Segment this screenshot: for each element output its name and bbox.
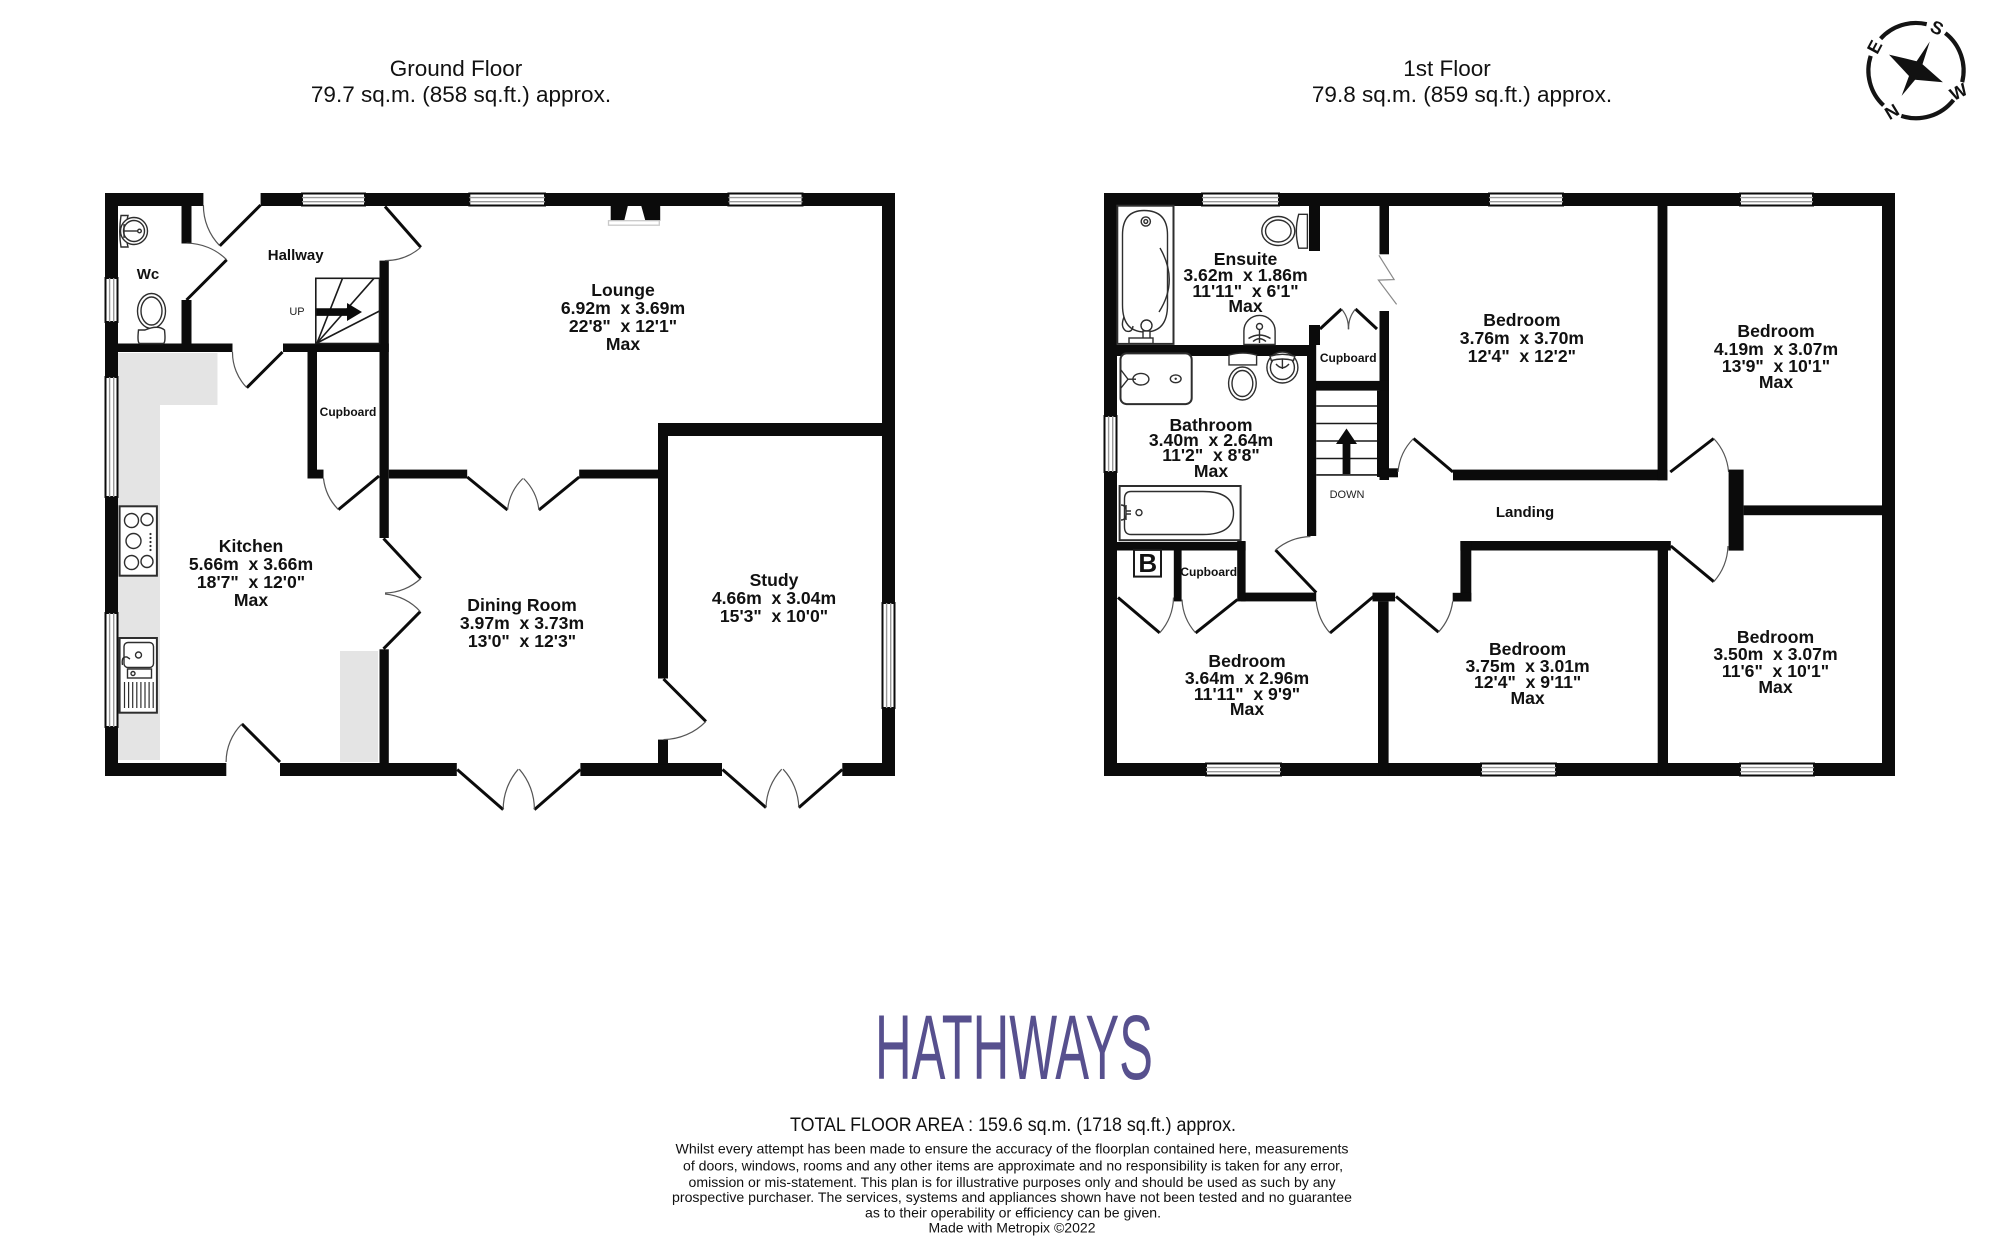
svg-text:prospective purchaser. The ser: prospective purchaser. The services, sys… [672,1189,1352,1205]
svg-text:79.7 sq.m. (858 sq.ft.) approx: 79.7 sq.m. (858 sq.ft.) approx. [311,82,611,107]
svg-text:Max: Max [1759,372,1793,392]
svg-text:omission or mis-statement. Thi: omission or mis-statement. This plan is … [689,1174,1336,1190]
svg-text:Bedroom: Bedroom [1737,321,1814,341]
svg-text:3.76m x 3.70m: 3.76m x 3.70m [1460,328,1584,348]
svg-text:18'7" x 12'0": 18'7" x 12'0" [197,572,305,592]
svg-text:Cupboard: Cupboard [1180,565,1237,579]
svg-text:79.8 sq.m. (859 sq.ft.) approx: 79.8 sq.m. (859 sq.ft.) approx. [1312,82,1612,107]
svg-text:TOTAL FLOOR AREA : 159.6 sq.m.: TOTAL FLOOR AREA : 159.6 sq.m. (1718 sq.… [790,1114,1236,1136]
svg-text:HATHWAYS: HATHWAYS [875,997,1153,1099]
svg-text:5.66m x 3.66m: 5.66m x 3.66m [189,554,313,574]
svg-text:3.97m x 3.73m: 3.97m x 3.73m [460,613,584,633]
svg-text:B: B [1138,548,1157,578]
svg-text:22'8" x 12'1": 22'8" x 12'1" [569,316,677,336]
svg-text:6.92m x 3.69m: 6.92m x 3.69m [561,298,685,318]
svg-text:Ground Floor: Ground Floor [390,56,523,81]
svg-text:Max: Max [606,334,640,354]
svg-text:UP: UP [289,306,304,318]
svg-text:13'0" x 12'3": 13'0" x 12'3" [468,631,576,651]
svg-text:Dining Room: Dining Room [467,595,576,615]
svg-text:Cupboard: Cupboard [320,405,377,419]
svg-text:Max: Max [1230,699,1264,719]
svg-text:Max: Max [1228,296,1262,316]
svg-text:as to their operability or eff: as to their operability or efficiency ca… [865,1205,1161,1221]
svg-text:Max: Max [1510,688,1544,708]
svg-text:Landing: Landing [1496,504,1554,521]
svg-text:Kitchen: Kitchen [219,536,284,556]
svg-text:Max: Max [234,590,268,610]
svg-text:Study: Study [750,570,799,590]
svg-text:Wc: Wc [137,266,160,283]
svg-text:4.66m x 3.04m: 4.66m x 3.04m [712,588,836,608]
svg-text:Max: Max [1194,461,1228,481]
svg-text:of doors, windows, rooms and a: of doors, windows, rooms and any other i… [683,1157,1343,1173]
svg-text:15'3" x 10'0": 15'3" x 10'0" [720,606,828,626]
svg-text:Bedroom: Bedroom [1483,310,1560,330]
svg-text:Cupboard: Cupboard [1320,351,1377,365]
svg-text:1st Floor: 1st Floor [1403,56,1491,81]
svg-text:Whilst every attempt has been: Whilst every attempt has been made to en… [676,1141,1349,1157]
svg-text:DOWN: DOWN [1330,489,1365,501]
svg-text:12'4" x 12'2": 12'4" x 12'2" [1468,346,1576,366]
svg-text:Hallway: Hallway [268,247,325,264]
svg-text:Lounge: Lounge [591,280,655,300]
svg-text:Max: Max [1758,677,1792,697]
svg-text:Made with Metropix ©2022: Made with Metropix ©2022 [929,1220,1096,1236]
